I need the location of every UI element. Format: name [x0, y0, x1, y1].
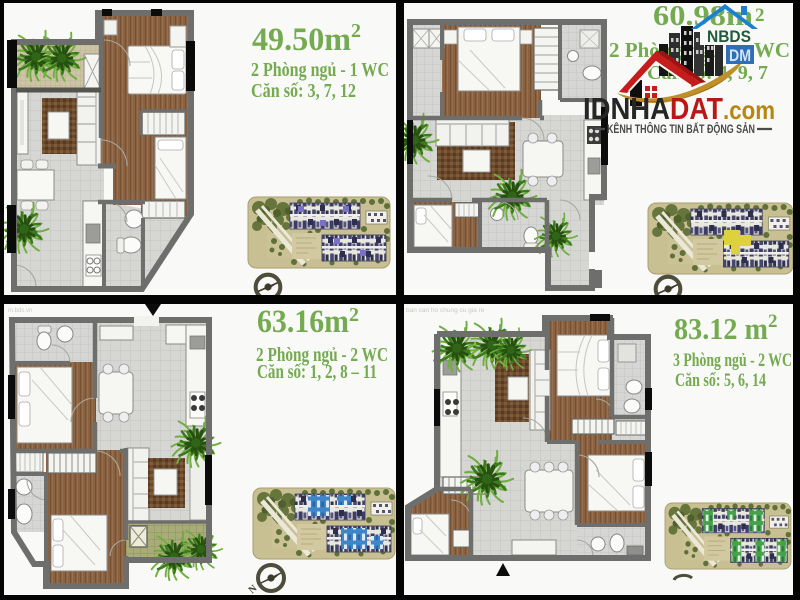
- svg-text:49.50m: 49.50m: [252, 22, 351, 58]
- svg-text:Căn số: 1, 2, 8 – 11: Căn số: 1, 2, 8 – 11: [257, 361, 377, 383]
- svg-text:63.16m: 63.16m: [257, 304, 349, 340]
- svg-text:KÊNH THÔNG TIN BẤT ĐỘNG SẢN: KÊNH THÔNG TIN BẤT ĐỘNG SẢN: [607, 121, 755, 136]
- svg-text:2: 2: [349, 304, 359, 326]
- svg-text:IDNHA: IDNHA: [583, 91, 670, 126]
- svg-text:2: 2: [768, 311, 778, 332]
- svg-text:DAT: DAT: [670, 91, 723, 126]
- svg-text:Căn số: 3, 7, 12: Căn số: 3, 7, 12: [251, 80, 356, 102]
- svg-text:ban can ho chung cu gia re: ban can ho chung cu gia re: [406, 307, 485, 314]
- svg-text:2: 2: [755, 5, 765, 26]
- svg-text:NBDS: NBDS: [707, 27, 751, 46]
- svg-text:m.bds.vn: m.bds.vn: [8, 308, 32, 314]
- svg-text:DM: DM: [729, 46, 751, 65]
- svg-text:83.12 m: 83.12 m: [674, 311, 768, 346]
- svg-text:2 Phòng ngủ - 1 WC: 2 Phòng ngủ - 1 WC: [251, 59, 389, 81]
- svg-text:2: 2: [351, 20, 361, 42]
- svg-text:.com: .com: [723, 95, 775, 125]
- svg-text:Căn số: 5, 6, 14: Căn số: 5, 6, 14: [675, 370, 766, 391]
- svg-text:3 Phòng ngủ - 2 WC: 3 Phòng ngủ - 2 WC: [673, 350, 792, 371]
